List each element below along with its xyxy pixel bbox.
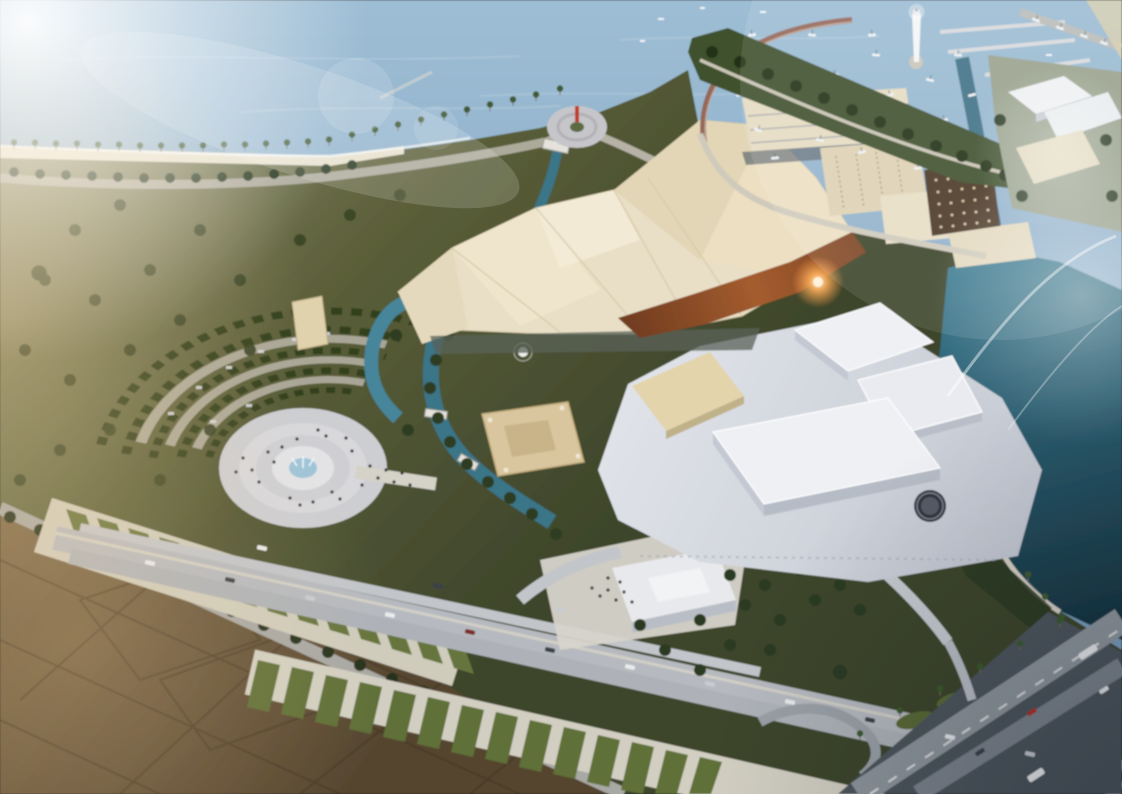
scene-canvas bbox=[0, 0, 1122, 794]
red-sculpture bbox=[575, 106, 579, 122]
heritage-courtyard-building bbox=[482, 402, 584, 476]
aerial-rendering-image bbox=[0, 0, 1122, 794]
sun-glint-core bbox=[813, 277, 823, 287]
seafront-roundabout bbox=[547, 106, 607, 148]
